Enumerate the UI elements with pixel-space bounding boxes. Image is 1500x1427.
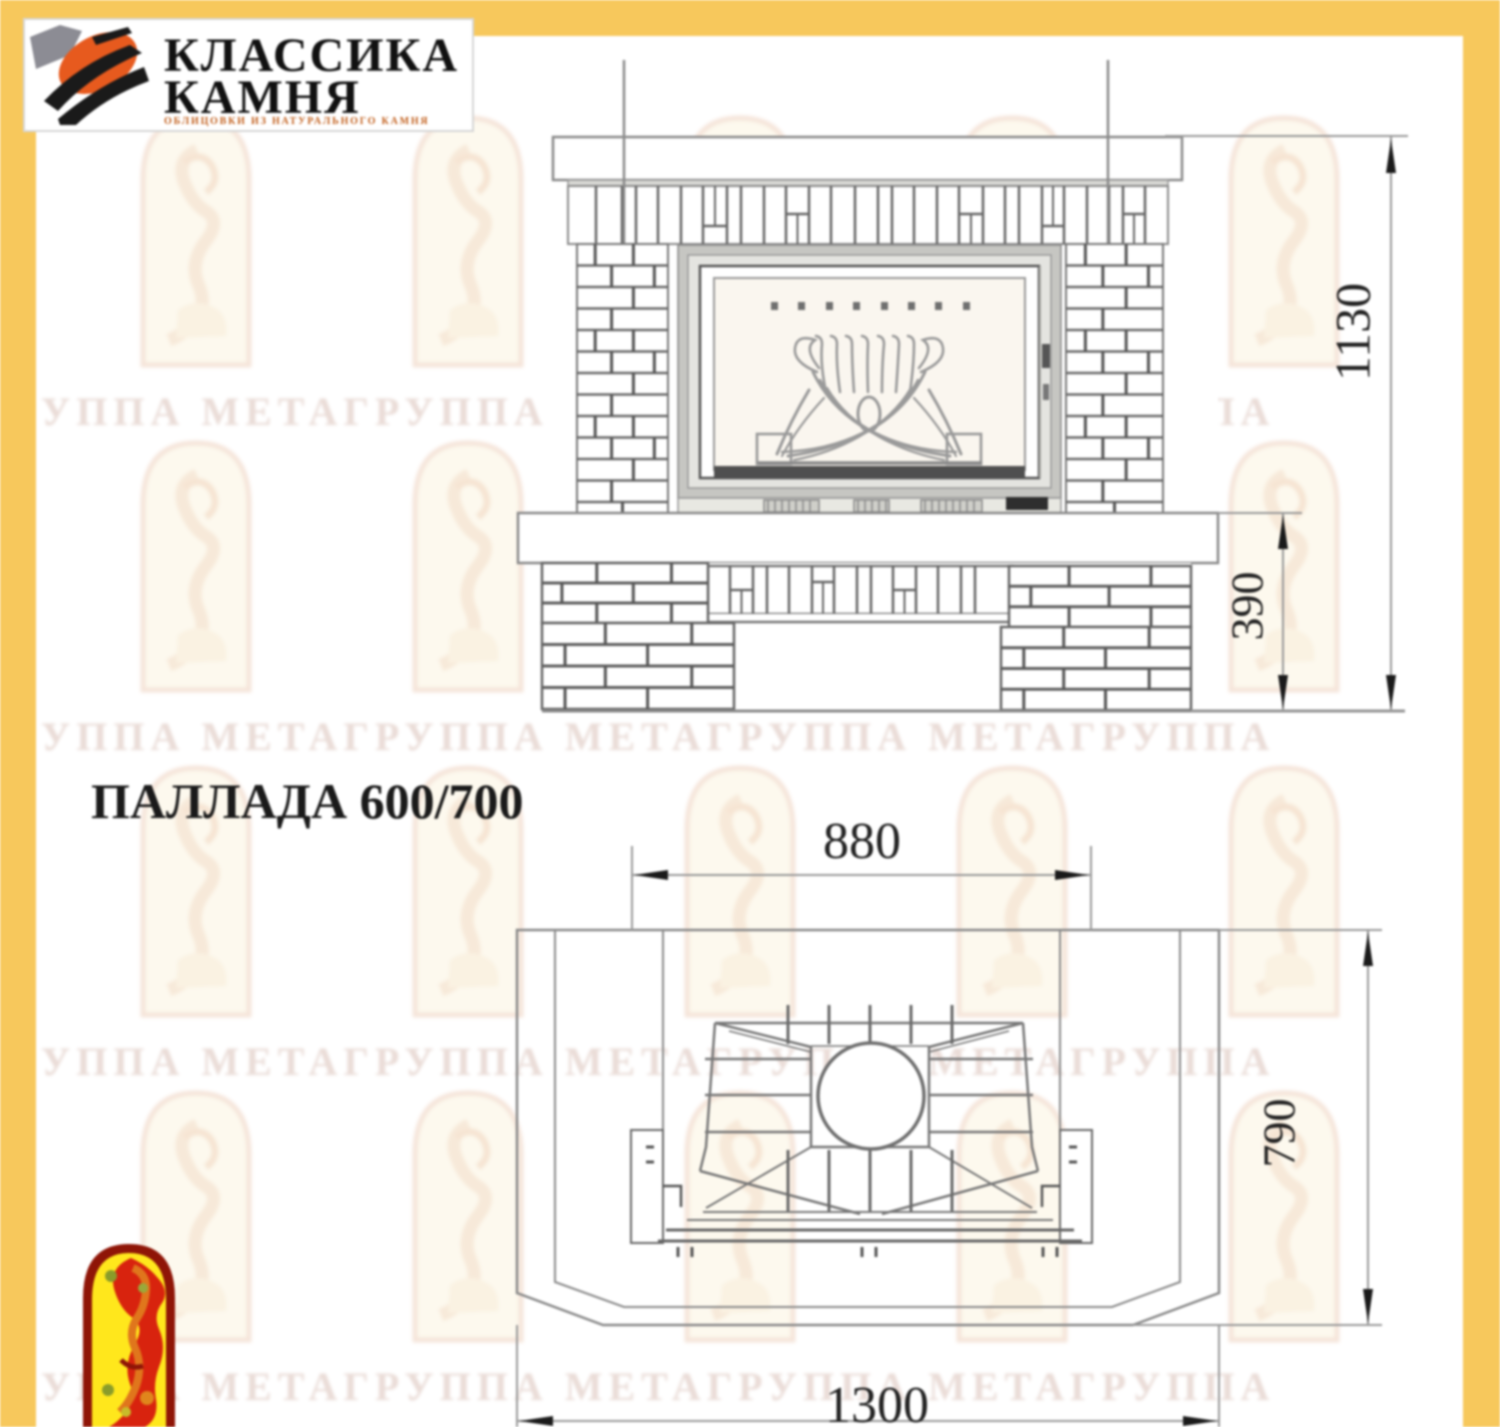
svg-text:1130: 1130 bbox=[1324, 283, 1380, 381]
svg-text:880: 880 bbox=[823, 813, 901, 870]
svg-text:390: 390 bbox=[1222, 572, 1273, 641]
svg-text:790: 790 bbox=[1254, 1099, 1305, 1168]
svg-text:1300: 1300 bbox=[825, 1377, 929, 1427]
